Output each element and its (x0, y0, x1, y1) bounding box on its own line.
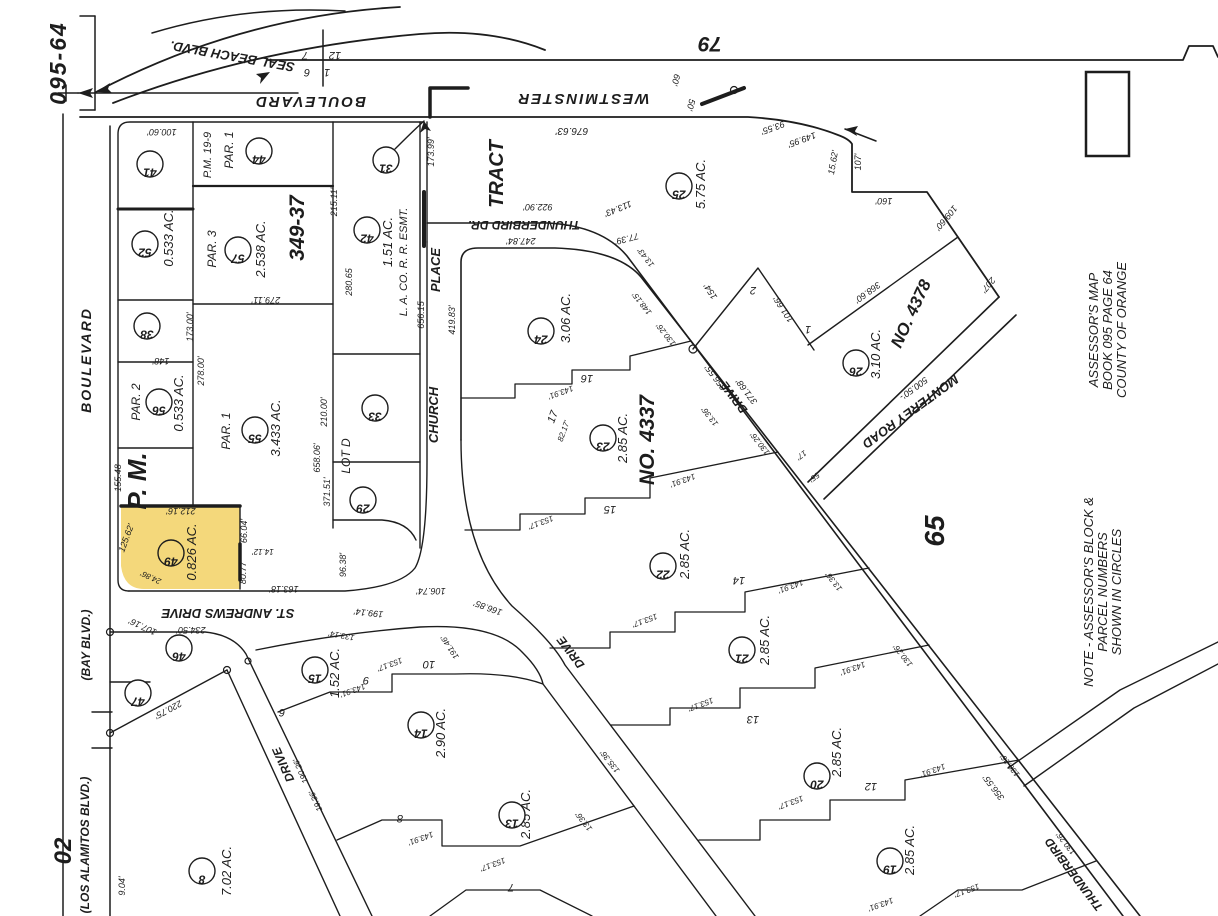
measurement-label: 143.91' (407, 830, 435, 848)
measurement-label: 107.16' (127, 616, 158, 638)
measurement-label: 278.00' (196, 356, 206, 387)
acreage-label: 7.02 AC. (219, 846, 234, 896)
measurement-label: NO. 4378 (887, 276, 935, 350)
parcel-number: 29 (356, 502, 371, 516)
parcel-number: 24 (534, 333, 549, 347)
acreage-label: 1.51 AC. (380, 217, 395, 267)
lot-number: 17 (545, 408, 561, 424)
measurement-label: 96.38' (338, 553, 348, 578)
road-name: PLACE (428, 248, 443, 292)
parcel-number: 14 (414, 727, 428, 741)
parcel-number: 22 (656, 568, 671, 582)
parcel-number: 20 (810, 778, 825, 792)
acreage-label: 3.06 AC. (558, 293, 573, 343)
measurement-label: P.M. 19-9 (202, 132, 214, 178)
acreage-label: 0.533 AC. (171, 374, 186, 431)
parcel-circle-41[interactable]: 41 (137, 151, 163, 180)
measurement-label: 93.55' (760, 119, 786, 137)
measurement-label: 922.90' (523, 202, 553, 212)
lot-number: 8 (396, 812, 403, 824)
measurement-label: 133.14' (328, 629, 356, 642)
parcel-number: 57 (230, 252, 245, 266)
book-note-line: ASSESSOR'S MAP (1086, 272, 1101, 388)
lot-number: 6 (278, 706, 285, 718)
parcel-number: 44 (252, 153, 267, 167)
parcel-number: 21 (735, 652, 750, 666)
parcel-circle-19[interactable]: 19 (877, 848, 903, 877)
lot-number: 10 (422, 658, 435, 670)
parcel-circle-31[interactable]: 31 (373, 147, 399, 176)
note-line: PARCEL NUMBERS (1095, 532, 1110, 652)
measurement-label: 160' (875, 196, 892, 206)
measurement-label: 113.43' (603, 199, 634, 219)
lot-number: 9 (363, 674, 369, 686)
parcel-number: 23 (596, 440, 611, 454)
parcel-circle-55[interactable]: 55 (242, 417, 268, 446)
road-name: THUNDERBIRD DR. (468, 218, 580, 232)
lot-number: 1 (324, 66, 330, 78)
measurement-label: 143.91' (919, 762, 947, 780)
road-name: SEAL BEACH BLVD. (169, 38, 296, 75)
measurement-label: 166.85' (472, 598, 503, 617)
acreage-label: 2.538 AC. (253, 220, 268, 278)
arrowheads (78, 72, 858, 136)
measurement-label: 143.91' (777, 578, 805, 596)
parcel-number: 19 (883, 863, 897, 877)
parcel-number: 46 (172, 650, 187, 664)
book-note-line: BOOK 095 PAGE 64 (1100, 270, 1115, 390)
parcel-circle-20[interactable]: 20 (804, 763, 830, 792)
measurement-label: PAR. 2 (129, 383, 143, 420)
parcel-circle-24[interactable]: 24 (528, 318, 554, 347)
acreage-label: 2.85 AC. (902, 825, 917, 876)
road-name: CHURCH (426, 386, 441, 443)
parcel-circle-33[interactable]: 33 (362, 395, 388, 424)
measurement-label: 155.48 (113, 464, 123, 492)
measurement-label: 65 (919, 515, 950, 547)
parcel-circle-14[interactable]: 14 (408, 712, 434, 741)
parcel-number: 55 (248, 432, 262, 446)
road-name: TRACT (486, 138, 508, 208)
assessor-map-canvas: 095-64 ASSESSOR'S MAP BOOK 095 PAGE 64 C… (0, 0, 1218, 916)
parcel-circle-52[interactable]: 52 (132, 231, 158, 260)
measurement-label: 234.50' (176, 625, 207, 635)
lot-number: 7 (301, 49, 308, 61)
acreage-label: 3.433 AC. (268, 399, 283, 456)
westminster-upper-line (268, 46, 1218, 60)
road-name: 79 (698, 32, 722, 55)
measurement-label: 9.04' (117, 876, 127, 896)
measurement-label: 419.83' (447, 305, 457, 335)
book-note-line: COUNTY OF ORANGE (1114, 262, 1129, 398)
measurement-label: 153.17' (687, 696, 715, 714)
measurement-label: 247.84' (506, 236, 537, 246)
measurement-label: 100.60' (147, 127, 177, 137)
road-name: (LOS ALAMITOS BLVD.) (78, 777, 92, 914)
parcel-circle-38[interactable]: 38 (134, 313, 160, 342)
parcel-circle-21[interactable]: 21 (729, 637, 755, 666)
measurement-label: 154' (702, 282, 720, 302)
measurement-label: 173.99' (426, 137, 436, 167)
lot-number: 6 (303, 66, 310, 78)
measurement-labels: 100.60'60'50'676.63'93.55'149.95'15.62'1… (50, 73, 1078, 913)
measurement-label: 106.74' (416, 586, 446, 596)
parcel-number: 33 (368, 410, 382, 424)
lot-number: 2 (750, 284, 757, 296)
measurement-label: 143.91' (547, 384, 575, 402)
parcel-circle-25[interactable]: 25 (666, 173, 692, 202)
parcel-number-circles: 4144315257423856553325242923262249464715… (125, 138, 903, 887)
measurement-label: 191.46' (439, 634, 461, 661)
measurement-label: 199.14' (353, 606, 383, 619)
measurement-label: 656.15 (416, 300, 426, 329)
measurement-label: 210.00' (319, 397, 329, 428)
parcel-circle-44[interactable]: 44 (246, 138, 272, 167)
measurement-label: 148.15' (630, 290, 653, 316)
measurement-label: 143.91' (669, 472, 697, 490)
acreage-label: 2.85 AC. (677, 529, 692, 580)
lot-number: 16 (580, 372, 593, 384)
measurement-label: LOT D (339, 438, 353, 474)
parcel-number: 26 (849, 365, 864, 379)
measurement-label: 215.11' (329, 187, 339, 217)
acreage-label: 0.826 AC. (184, 523, 199, 580)
measurement-label: 107' (853, 153, 863, 170)
measurement-label: 66.04' (239, 519, 249, 544)
parcel-number: 38 (140, 328, 154, 342)
measurement-label: 17' (794, 448, 808, 462)
parcel-circle-57[interactable]: 57 (225, 237, 251, 266)
acreage-label: 2.85 AC. (615, 413, 630, 464)
measurement-label: 02 (50, 837, 77, 864)
parcel-number: 8 (198, 873, 205, 887)
parcel-number: 56 (152, 404, 166, 418)
measurement-label: 153.17' (527, 514, 555, 532)
measurement-label: PAR. 1 (222, 131, 236, 168)
measurement-label: 135.36' (598, 748, 621, 774)
parcel-circle-46[interactable]: 46 (166, 635, 192, 664)
parcel-circle-29[interactable]: 29 (350, 487, 376, 516)
measurement-label: 60' (669, 73, 682, 87)
measurement-label: 50' (684, 98, 697, 112)
measurement-label: 82.17' (556, 419, 572, 443)
westminster-corner-thick (430, 88, 468, 117)
measurement-label: 130.26' (654, 321, 677, 347)
parcel-circle-42[interactable]: 42 (354, 217, 380, 246)
acreage-label: 2.90 AC. (433, 708, 448, 759)
road-name: DRIVE (554, 633, 588, 672)
parcel-number: 52 (138, 246, 152, 260)
measurement-label: NO. 4337 (636, 394, 659, 485)
measurement-label: 173.00' (185, 312, 195, 342)
road-name: ST. ANDREWS DRIVE (161, 606, 294, 621)
measurement-label: 143.91' (867, 896, 895, 914)
parcel-number: 31 (379, 162, 393, 176)
parcel-circle-15[interactable]: 15 (302, 657, 328, 686)
measurement-label: 13.43' (636, 246, 657, 269)
parcel-circle-26[interactable]: 26 (843, 350, 869, 379)
road-name: WESTMINSTER (517, 90, 650, 107)
acreage-label: 0.533 AC. (161, 209, 176, 266)
parcel-number: 15 (308, 672, 322, 686)
measurement-label: 101.66' (771, 294, 795, 324)
acreage-label: 3.10 AC. (868, 329, 883, 379)
parcel-number: 42 (360, 232, 375, 246)
measurement-label: 149.95' (786, 130, 817, 149)
measurement-label: 15.62' (826, 149, 840, 175)
measurement-label: 163.18' (269, 584, 299, 594)
measurement-label: 153.17' (376, 656, 404, 674)
parcel-number: 25 (672, 188, 687, 202)
lot-number: 12 (865, 780, 877, 792)
measurement-label: 658.06' (312, 443, 322, 473)
acreage-label: 2.85 AC. (757, 615, 772, 666)
measurement-label: 13.36' (700, 405, 721, 428)
measurement-label: 280.65 (344, 267, 354, 297)
sheet-number: 095-64 (45, 21, 71, 105)
lot-number: 12 (329, 49, 341, 61)
measurement-label: P. M. (122, 452, 152, 509)
thunderbird-spur (1008, 642, 1218, 786)
legend-box (1086, 72, 1129, 156)
note-line: SHOWN IN CIRCLES (1109, 528, 1124, 655)
assessor-map-sheet: 095-64 ASSESSOR'S MAP BOOK 095 PAGE 64 C… (0, 0, 1218, 916)
seal-beach-arc-3 (152, 10, 345, 33)
parcel-number: 47 (130, 695, 146, 709)
lot-number-labels: 1615141312109876172171261 (278, 49, 877, 893)
parcel-circle-22[interactable]: 22 (650, 553, 676, 582)
road-name: (BAY BLVD.) (79, 610, 93, 681)
measurement-label: 676.63' (555, 125, 589, 136)
measurement-label: L. A. CO. R. R. ESMT. (398, 208, 410, 317)
measurement-label: 130.26' (998, 752, 1021, 778)
parcel-circle-56[interactable]: 56 (146, 389, 172, 418)
parcel-circle-23[interactable]: 23 (590, 425, 616, 454)
tract4378-v-spur (693, 268, 814, 350)
measurement-label: 349-37 (286, 194, 309, 261)
lot-number: 1 (805, 323, 811, 335)
measurement-label: 19.36' (307, 789, 324, 813)
parcel-number: 49 (164, 555, 179, 569)
measurement-label: 77.39' (614, 231, 640, 247)
parcel-number: 13 (505, 817, 519, 831)
measurement-label: 153.17' (631, 612, 659, 630)
note-line: NOTE - ASSESSOR'S BLOCK & (1081, 497, 1096, 687)
road-name: BOULEVARD (78, 307, 94, 413)
lot-number: 13 (746, 713, 759, 725)
lot-number: 7 (507, 881, 514, 893)
measurement-label: 55' (807, 470, 821, 484)
parcel-number: 41 (143, 166, 158, 180)
measurement-label: 153.17' (953, 882, 981, 900)
acreage-label: 5.75 AC. (693, 159, 708, 209)
lot-number: 14 (733, 574, 745, 586)
measurement-label: 153.17' (479, 856, 507, 874)
measurement-label: PAR. 1 (219, 412, 233, 449)
measurement-label: 356.55' (703, 363, 729, 393)
measurement-label: 80.77' (238, 560, 248, 585)
parcel-circle-47[interactable]: 47 (125, 680, 151, 709)
lot-number: 15 (603, 503, 616, 515)
parcel-circle-8[interactable]: 8 (189, 858, 215, 887)
seal-beach-arc-1 (96, 7, 400, 92)
measurement-label: 279.11' (251, 295, 281, 305)
measurement-label: PAR. 3 (205, 230, 219, 267)
acreage-label: 2.85 AC. (829, 727, 844, 778)
measurement-label: 14.12' (252, 547, 274, 556)
measurement-label: 148' (152, 356, 169, 366)
measurement-label: 356.55' (981, 773, 1007, 803)
measurement-label: 212.16' (166, 506, 197, 516)
measurement-label: 153.17' (777, 794, 805, 812)
measurement-label: 143.91' (339, 682, 367, 700)
measurement-label: 371.51' (322, 477, 332, 507)
tract4378-inner-line (808, 237, 958, 345)
road-name: BOULEVARD (254, 93, 366, 110)
measurement-label: 130.26' (891, 642, 914, 668)
